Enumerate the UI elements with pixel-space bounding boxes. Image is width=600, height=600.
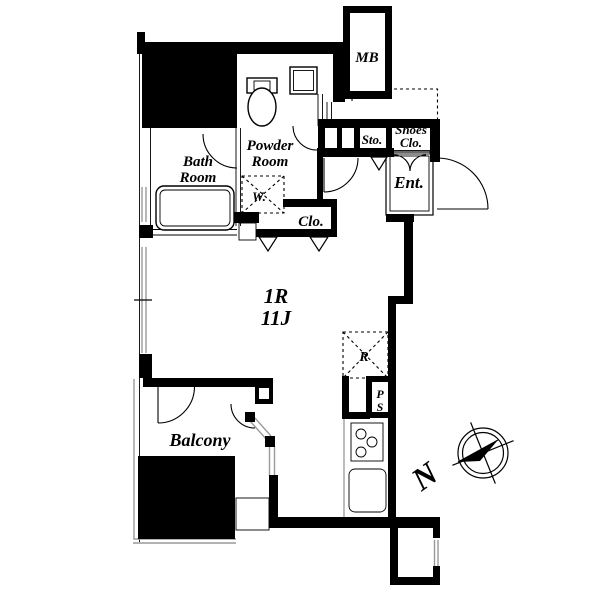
shoes-door-left-swing xyxy=(394,155,410,171)
toilet-icon xyxy=(247,78,277,126)
label-shoes-line2: Clo. xyxy=(400,135,422,150)
label-washer: W. xyxy=(252,189,266,204)
label-entrance: Ent. xyxy=(393,173,424,192)
label-north: N xyxy=(404,454,446,498)
room-door-swing xyxy=(324,158,358,192)
label-powder-line2: Room xyxy=(251,154,289,170)
label-refrigerator: R xyxy=(358,350,368,365)
label-pipe-line2: S xyxy=(377,400,384,414)
storage-door-marker xyxy=(371,157,387,170)
walls xyxy=(137,6,440,585)
label-balcony: Balcony xyxy=(169,430,232,450)
powder-door-swing xyxy=(293,126,317,150)
closet-door-marker-left xyxy=(259,237,277,251)
label-pipe-line1: P xyxy=(376,387,384,401)
kitchen-counter-icon xyxy=(344,417,390,521)
label-storage: Sto. xyxy=(362,132,383,147)
floorplan-canvas: MB Powder Room Bath Room Sto. Shoes Clo.… xyxy=(0,0,600,600)
label-powder-line1: Powder xyxy=(247,138,294,154)
void-block-bottom xyxy=(138,456,235,539)
label-bath-line1: Bath xyxy=(182,154,213,170)
closet-door-marker-right xyxy=(310,237,328,251)
bathtub-icon xyxy=(156,186,234,230)
void-block-top xyxy=(142,54,237,128)
entrance-door-swing xyxy=(437,158,488,209)
floorplan-drawing: MB Powder Room Bath Room Sto. Shoes Clo.… xyxy=(0,0,600,600)
shoes-door-right-swing xyxy=(410,155,426,171)
compass-icon xyxy=(440,410,526,496)
balcony-door-swing xyxy=(158,387,195,423)
label-closet: Clo. xyxy=(298,214,323,230)
label-bath-line2: Room xyxy=(179,170,217,186)
label-meter-box: MB xyxy=(354,50,378,66)
washbasin-icon xyxy=(290,67,317,94)
label-unit-type: 1R xyxy=(264,284,289,308)
label-unit-size: 11J xyxy=(261,306,293,330)
